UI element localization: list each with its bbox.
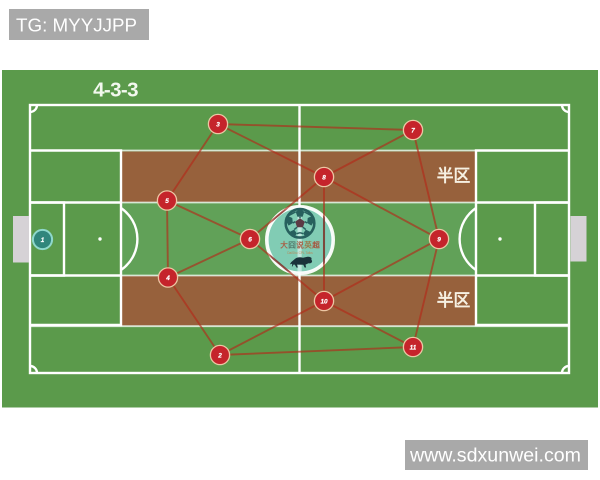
svg-text:DaiShu CPL Talks: DaiShu CPL Talks	[287, 251, 313, 255]
svg-text:大: 大	[280, 239, 288, 249]
svg-text:4-3-3: 4-3-3	[93, 79, 138, 102]
svg-text:10: 10	[320, 299, 328, 306]
svg-text:囧: 囧	[288, 240, 296, 249]
svg-text:半区: 半区	[437, 166, 471, 186]
svg-text:说: 说	[296, 239, 304, 249]
svg-text:7: 7	[411, 128, 415, 135]
svg-text:www.sdxunwei.com: www.sdxunwei.com	[409, 445, 581, 467]
svg-text:半区: 半区	[437, 290, 471, 310]
svg-text:1: 1	[41, 237, 45, 244]
svg-text:TG: MYYJJPP: TG: MYYJJPP	[16, 15, 137, 36]
svg-text:2: 2	[217, 353, 222, 360]
svg-text:超: 超	[311, 239, 320, 249]
svg-text:8: 8	[322, 175, 326, 182]
svg-text:9: 9	[437, 237, 441, 244]
svg-text:5: 5	[165, 198, 169, 205]
svg-text:6: 6	[248, 237, 252, 244]
svg-text:11: 11	[410, 345, 417, 352]
svg-text:4: 4	[165, 275, 170, 282]
svg-text:3: 3	[216, 122, 220, 129]
svg-text:英: 英	[304, 239, 312, 249]
